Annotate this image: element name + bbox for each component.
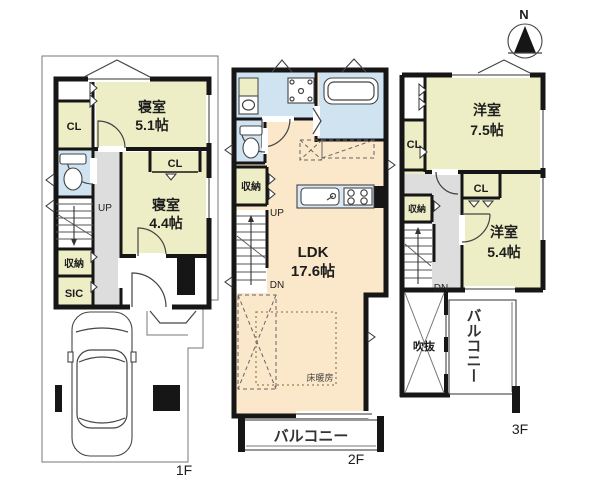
floor-1f-plan: 寝室 5.1帖 CL CL 寝室 4.4帖 収納 SIC UP 1F	[42, 56, 218, 478]
floor-3f-plan: 洋室 7.5帖 CL CL 収納 洋室 5.4帖 DN 吹抜 バルコニー 3F	[400, 60, 546, 437]
floor-2f-plan: LDK 17.6帖 収納 UP DN 床暖房 バルコニー 2F	[225, 59, 395, 467]
room1-size-label: 7.5帖	[470, 122, 503, 138]
bedroom2-size-label: 4.4帖	[149, 215, 182, 231]
closet3-1-label: CL	[407, 139, 422, 151]
closet2-label: CL	[168, 158, 183, 170]
washer-pan-icon	[288, 78, 314, 103]
bedroom2-name-label: 寝室	[152, 197, 180, 213]
up1-label: UP	[98, 203, 112, 214]
bathtub-icon	[324, 78, 378, 104]
void-label: 吹抜	[413, 339, 436, 353]
north-label: N	[519, 7, 528, 22]
floor-heating-label: 床暖房	[306, 372, 333, 383]
dn2-label: DN	[270, 280, 284, 291]
storage2-label: 収納	[241, 180, 261, 193]
ldk-size-label: 17.6帖	[291, 262, 335, 280]
bedroom1-name-label: 寝室	[138, 99, 166, 115]
ldk-name-label: LDK	[298, 244, 329, 261]
car-icon	[68, 312, 136, 456]
up2-label: UP	[270, 208, 284, 219]
room1-name-label: 洋室	[473, 102, 501, 118]
floor2-label: 2F	[348, 451, 364, 467]
balcony2-label: バルコニー	[274, 428, 349, 445]
entrance-wall-block	[177, 258, 195, 295]
north-compass-icon: N	[508, 7, 542, 58]
dn3-label: DN	[434, 283, 448, 294]
bedroom1-size-label: 5.1帖	[135, 117, 168, 133]
storage3-label: 収納	[408, 203, 426, 214]
balcony3-label: バルコニー	[465, 308, 482, 383]
closet1-label: CL	[67, 121, 82, 133]
balcony-3f	[449, 300, 520, 413]
closet3-2-label: CL	[474, 183, 489, 195]
hall1-area	[94, 149, 121, 307]
vanity-icon	[239, 78, 258, 114]
room2-name-label: 洋室	[490, 224, 518, 240]
kitchen-counter-icon	[297, 185, 374, 208]
floor-plan-svg: N	[0, 0, 600, 494]
room2-size-label: 5.4帖	[487, 244, 520, 260]
floor1-label: 1F	[176, 462, 192, 478]
site-post	[55, 385, 62, 412]
floor-plan-image: N	[0, 0, 600, 494]
sic-label: SIC	[65, 288, 83, 300]
storage1-label: 収納	[64, 257, 84, 270]
floor3-label: 3F	[512, 421, 528, 437]
site-block	[153, 385, 180, 411]
